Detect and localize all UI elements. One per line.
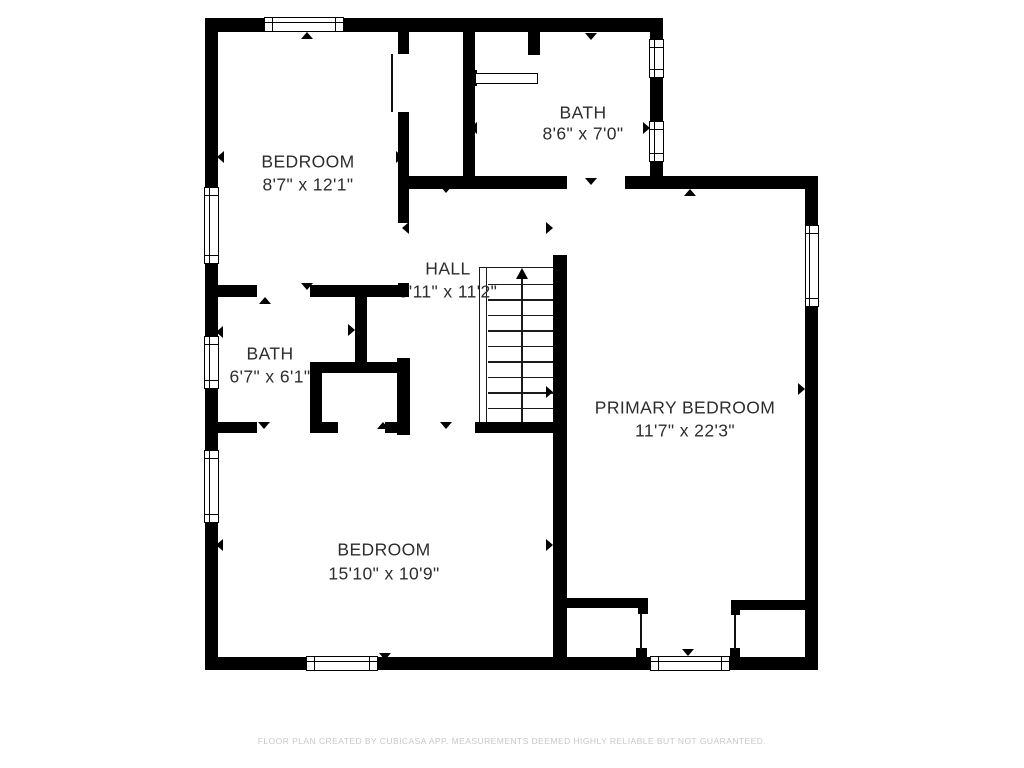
window-pane-line — [209, 188, 210, 263]
stairs-up-arrow-icon — [516, 268, 528, 279]
hall-door-arrow-icon — [440, 422, 452, 429]
bedroom-bottom-marker-right-icon — [546, 539, 553, 551]
window-pane-line — [658, 657, 659, 670]
primary-closet-left-door-leaf — [640, 614, 642, 650]
bath-left-tee-wall — [355, 297, 367, 363]
staircase-line — [521, 277, 523, 423]
bedroom-top-right-wall-stub — [398, 32, 409, 54]
window-pane-line — [806, 298, 818, 299]
primary-bottom-arrow-icon — [682, 649, 694, 656]
bath-top-left-wall — [463, 32, 475, 178]
room-label: HALL — [425, 259, 470, 280]
bedroom-bottom-top-wall-b — [310, 422, 338, 433]
bath-top-marker-left-icon — [470, 122, 477, 134]
window-pane-line — [205, 195, 218, 196]
bedroom-top-marker-left-icon — [217, 151, 224, 163]
room-label: PRIMARY BEDROOM — [595, 398, 775, 419]
hall-primary-divider-wall — [553, 255, 567, 658]
bedroom-bottom-top-wall-a — [205, 422, 257, 433]
window-pane-line — [209, 451, 210, 522]
bedroom-top-marker-up-icon — [301, 32, 313, 39]
room-label: BEDROOM — [261, 152, 354, 173]
bath-left-marker-up-icon — [259, 297, 271, 304]
window-pane-line — [650, 47, 663, 48]
bath-left-marker-left-icon — [216, 326, 223, 338]
bedroom-top-marker-right-icon — [396, 151, 403, 163]
window-pane-line — [650, 153, 663, 154]
hall-top-marker-icon — [440, 186, 452, 193]
window-left-bedroom-bottom — [204, 450, 219, 523]
window-bedroom-top — [264, 17, 344, 32]
closet-top-wall — [310, 362, 400, 373]
primary-top-wall-right — [625, 176, 818, 189]
hall-right-marker-icon — [546, 386, 553, 398]
window-pane-line — [721, 657, 722, 670]
window-pane-line — [307, 661, 377, 662]
primary-right-marker-icon — [798, 383, 805, 395]
room-dimensions: 15'10" x 10'9" — [328, 564, 439, 585]
window-pane-line — [650, 129, 663, 130]
window-pane-line — [806, 233, 818, 234]
room-label: BEDROOM — [337, 540, 430, 561]
room-dimensions: 8'6" x 7'0" — [543, 124, 624, 145]
window-pane-line — [314, 657, 315, 670]
bath-left-top-wall-b — [310, 285, 409, 297]
bedroom-bottom-marker-left-icon — [216, 539, 223, 551]
window-pane-line — [650, 69, 663, 70]
bath-shelf — [475, 73, 538, 84]
primary-closet-right-wall — [731, 600, 817, 610]
primary-closet-right-jamb-top — [731, 607, 740, 615]
window-pane-line — [205, 380, 218, 381]
window-primary-right — [805, 225, 819, 307]
room-dimensions: 5'11" x 11'2" — [399, 282, 498, 303]
room-label: BATH — [560, 103, 607, 124]
window-pane-line — [651, 661, 729, 662]
window-left-bath — [204, 336, 219, 389]
window-pane-line — [205, 255, 218, 256]
window-pane-line — [205, 514, 218, 515]
closet-door-arrow-icon — [377, 422, 389, 429]
floor-plan-page: BEDROOM8'7" x 12'1"BATH8'6" x 7'0"HALL5'… — [0, 0, 1024, 768]
bedroom-top-door-leaf — [391, 54, 393, 112]
room-label: BATH — [247, 344, 294, 365]
primary-closet-left-wall — [567, 598, 648, 608]
floor-plan-canvas: BEDROOM8'7" x 12'1"BATH8'6" x 7'0"HALL5'… — [0, 0, 1024, 768]
room-dimensions: 11'7" x 22'3" — [635, 421, 735, 442]
bath-top-door-arrow-icon — [585, 178, 597, 185]
primary-closet-left-jamb-top — [638, 605, 648, 614]
window-bedroom-bottom — [306, 656, 378, 671]
primary-door-arrow-icon — [546, 222, 553, 234]
primary-top-wall-left — [407, 176, 567, 189]
window-pane-line — [369, 657, 370, 670]
window-pane-line — [205, 458, 218, 459]
bath-top-marker-right-icon — [643, 122, 650, 134]
bath-left-marker-right-icon — [348, 324, 355, 336]
bedroom-top-door-arrow-icon — [402, 222, 409, 234]
window-primary-bottom — [650, 656, 730, 671]
window-pane-line — [205, 344, 218, 345]
window-pane-line — [272, 18, 273, 31]
bath-left-marker-down-icon — [258, 422, 270, 429]
window-bath-right-upper — [649, 39, 664, 78]
window-pane-line — [654, 122, 655, 161]
bedroom-top-marker-down-icon — [301, 283, 313, 290]
window-pane-line — [335, 18, 336, 31]
window-pane-line — [809, 226, 810, 306]
footer-disclaimer: FLOOR PLAN CREATED BY CUBICASA APP. MEAS… — [0, 736, 1024, 746]
window-pane-line — [654, 40, 655, 77]
primary-closet-right-door-leaf — [734, 615, 736, 650]
bedroom-bottom-marker-down-icon — [379, 653, 391, 660]
bath-top-interior-stub — [528, 32, 540, 55]
room-dimensions: 6'7" x 6'1" — [230, 367, 311, 388]
bedroom-top-right-wall — [398, 112, 409, 223]
primary-top-marker-icon — [684, 189, 696, 196]
room-dimensions: 8'7" x 12'1" — [262, 175, 353, 196]
bath-left-top-wall-a — [205, 285, 257, 297]
window-left-bedroom-top — [204, 187, 219, 264]
bath-top-marker-down-icon — [585, 33, 597, 40]
window-pane-line — [265, 22, 343, 23]
window-bath-right-lower — [649, 121, 664, 162]
